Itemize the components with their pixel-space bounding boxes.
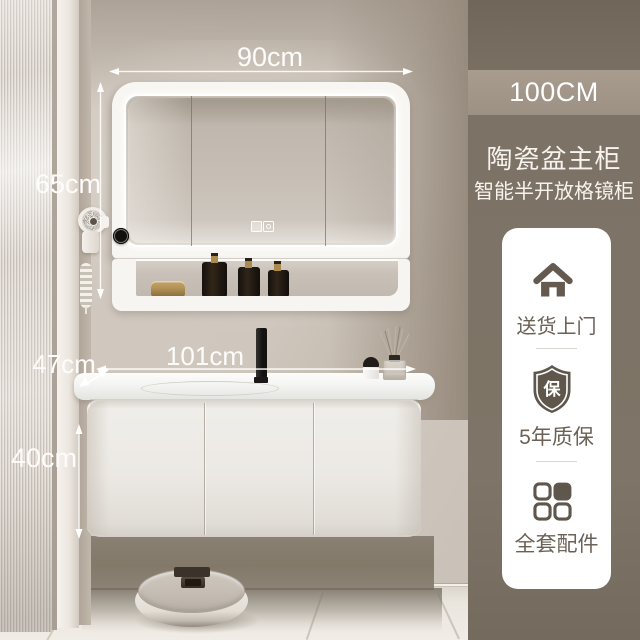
svg-text:保: 保 xyxy=(543,379,562,399)
